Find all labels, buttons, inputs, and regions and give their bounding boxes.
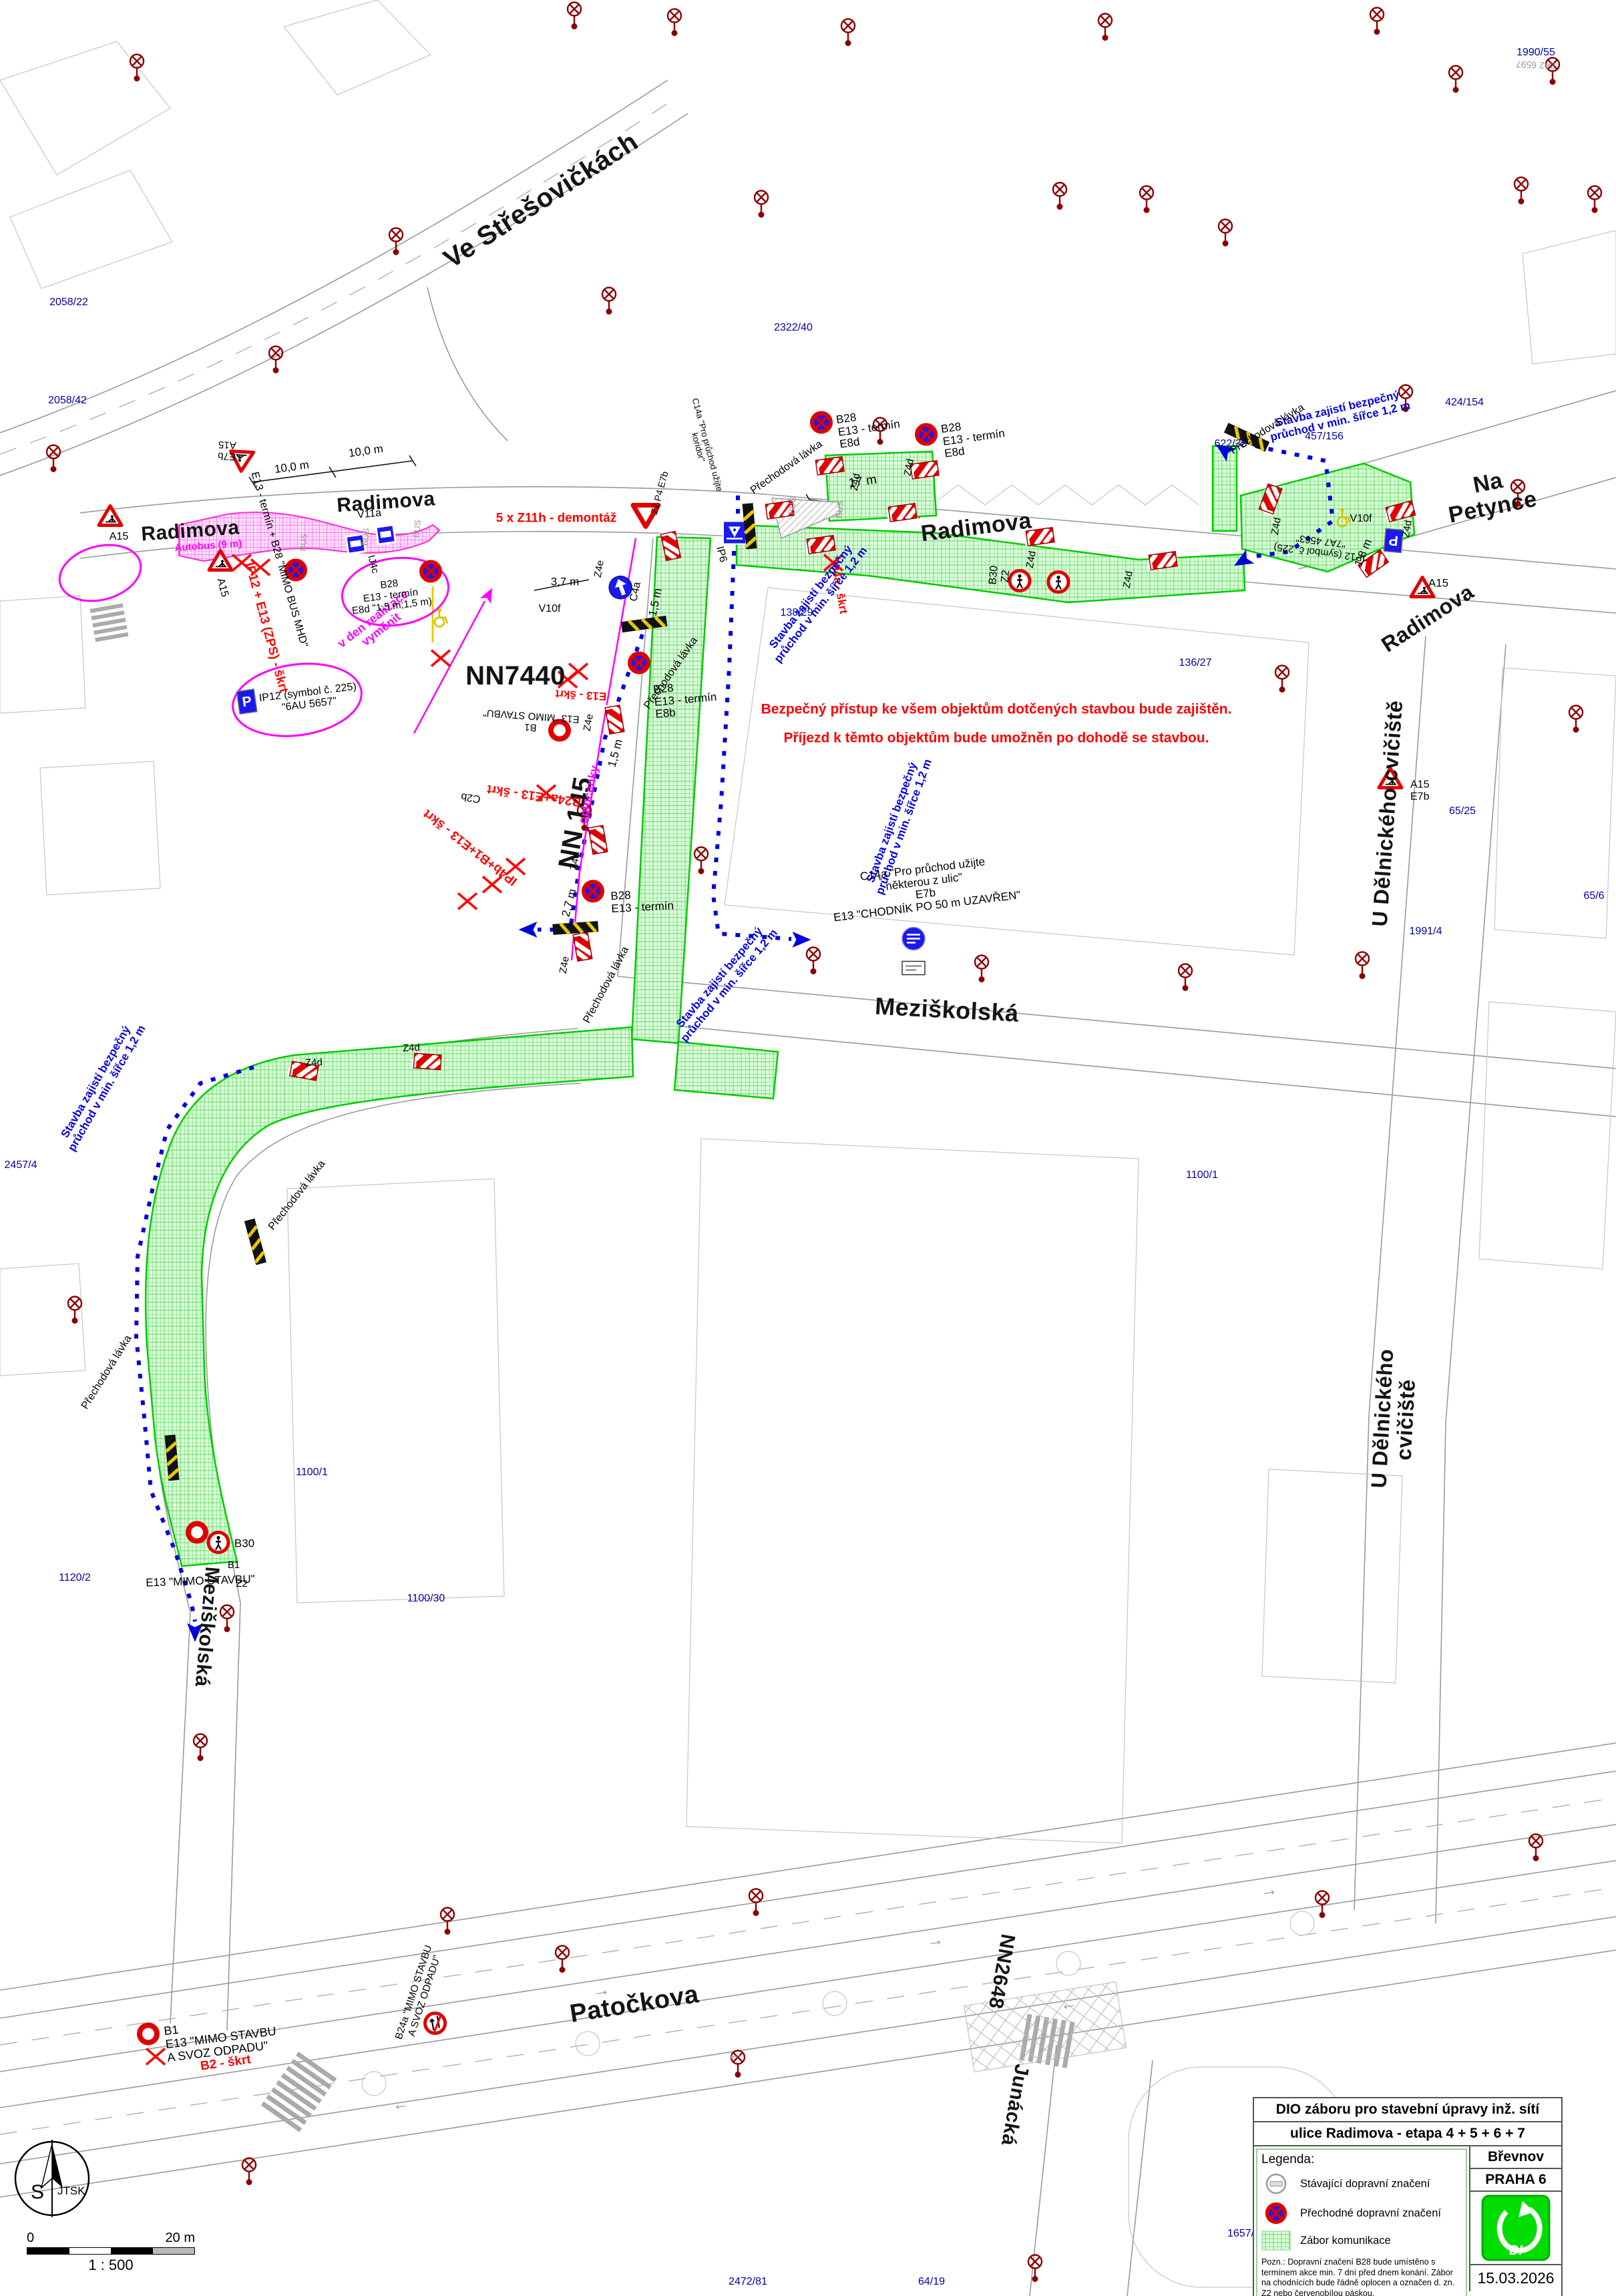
drawing-title-line1: DIO záboru pro stavební úpravy inž. sítí — [1254, 2098, 1561, 2122]
di-logo: DI — [1469, 2192, 1561, 2265]
map-canvas — [0, 0, 1616, 2296]
drawing-date: 15.03.2026 — [1469, 2265, 1561, 2291]
highlight-ellipse — [338, 551, 453, 632]
highlight-ellipse — [53, 536, 147, 609]
legend-existing-sign-icon — [1261, 2172, 1291, 2196]
legend-row-temporary: Přechodné dopravní značení — [1261, 2201, 1462, 2226]
fence-line — [414, 601, 485, 733]
scale-zero: 0 — [27, 2231, 34, 2246]
pink-zone — [179, 512, 439, 561]
district-name: Břevnov — [1469, 2146, 1561, 2169]
scale-bar-graphic — [27, 2247, 195, 2255]
compass-jtsk-label: JTSK — [57, 2184, 85, 2197]
highlight-ellipse — [228, 656, 367, 744]
green-zone — [825, 451, 936, 521]
green-zone — [1241, 463, 1414, 572]
legend-row-zabor: Zábor komunikace — [1261, 2231, 1462, 2251]
legend-row-existing: Stávající dopravní značení — [1261, 2172, 1462, 2196]
green-zone — [674, 1042, 778, 1099]
drawing-title-line2: ulice Radimova - etapa 4 + 5 + 6 + 7 — [1254, 2122, 1561, 2146]
green-zone — [1213, 446, 1237, 531]
green-zone — [146, 1027, 633, 1566]
green-zone — [737, 525, 1245, 602]
legend-heading: Legenda: — [1261, 2152, 1462, 2167]
city-name: PRAHA 6 — [1469, 2169, 1561, 2192]
green-zone — [632, 537, 711, 1043]
compass-s-label: S — [31, 2181, 44, 2203]
scale-ratio: 1 : 500 — [27, 2257, 195, 2274]
scale-max: 20 m — [166, 2231, 195, 2246]
legend: Legenda: Stávající dopravní značení Přec… — [1256, 2148, 1467, 2296]
legend-existing-label: Stávající dopravní značení — [1300, 2178, 1430, 2190]
legend-zabor-swatch — [1261, 2231, 1291, 2251]
legend-zabor-label: Zábor komunikace — [1300, 2235, 1391, 2247]
compass-rose: S JTSK — [11, 2137, 93, 2220]
scale-bar: 0 20 m 1 : 500 — [27, 2231, 195, 2274]
legend-temporary-sign-icon — [1261, 2201, 1291, 2226]
title-block-note: Pozn.: Dopravní značení B28 bude umístěn… — [1261, 2257, 1462, 2296]
title-block: DIO záboru pro stavební úpravy inž. sítí… — [1253, 2097, 1563, 2296]
pedestrian-detour-route — [538, 634, 642, 930]
di-logo-text: DI — [1509, 2243, 1523, 2258]
legend-temporary-label: Přechodné dopravní značení — [1300, 2207, 1441, 2220]
dio-traffic-plan-map: PP Ve StřešovičkáchRadimovaRadimovaRadim… — [0, 0, 1616, 2296]
pedestrian-detour-route — [713, 538, 791, 939]
